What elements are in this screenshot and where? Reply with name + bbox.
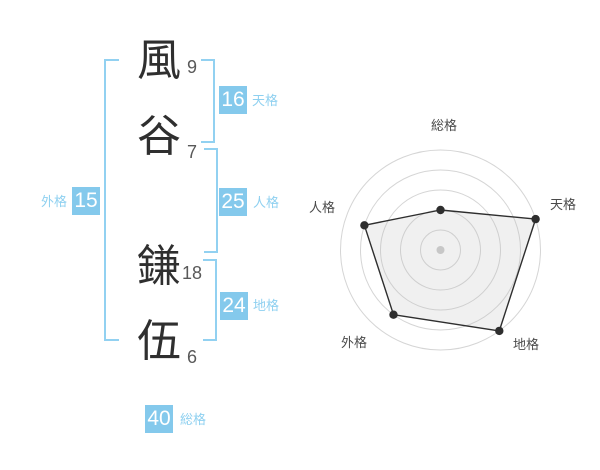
jinkaku-label: 人格	[253, 195, 279, 211]
jinkaku-badge: 25	[219, 188, 247, 216]
radar-data-point	[495, 327, 503, 335]
tenkaku-bracket	[201, 59, 215, 143]
chikaku-bracket	[203, 259, 217, 341]
radar-data-point	[389, 311, 397, 319]
fortune-radar-chart: 総格天格地格外格人格	[300, 110, 590, 380]
radar-data-point	[531, 215, 539, 223]
soukaku-value: 40	[147, 407, 170, 430]
tenkaku-value: 16	[221, 88, 244, 111]
name-char-1: 風	[137, 39, 181, 83]
name-char-4: 伍	[137, 320, 181, 364]
stroke-count-3: 18	[181, 263, 203, 283]
radar-axis-label: 人格	[309, 200, 335, 215]
name-char-3: 鎌	[137, 245, 181, 289]
tenkaku-badge: 16	[219, 86, 247, 114]
stroke-count-4: 6	[181, 347, 203, 367]
chikaku-badge: 24	[220, 292, 248, 320]
soukaku-label: 総格	[180, 412, 206, 428]
seimei-handan-panel: 風 9 谷 7 鎌 18 伍 6 16 天格 25 人格 24 地格 15 外格…	[0, 0, 600, 470]
name-char-2: 谷	[137, 115, 181, 159]
stroke-count-2: 7	[181, 142, 203, 162]
radar-data-point	[436, 206, 444, 214]
chikaku-label: 地格	[253, 298, 279, 314]
radar-center-dot	[437, 246, 445, 254]
gaikaku-value: 15	[74, 189, 97, 212]
tenkaku-label: 天格	[252, 93, 278, 109]
jinkaku-value: 25	[221, 190, 244, 213]
radar-axis-label: 総格	[431, 118, 457, 133]
radar-axis-label: 天格	[550, 197, 576, 212]
radar-axis-label: 地格	[513, 337, 539, 352]
gaikaku-bracket	[104, 59, 119, 341]
chikaku-value: 24	[222, 294, 245, 317]
radar-data-point	[360, 221, 368, 229]
radar-axis-label: 外格	[341, 335, 367, 350]
stroke-count-1: 9	[181, 57, 203, 77]
gaikaku-label: 外格	[41, 194, 67, 210]
jinkaku-bracket	[204, 148, 218, 253]
soukaku-badge: 40	[145, 405, 173, 433]
gaikaku-badge: 15	[72, 187, 100, 215]
